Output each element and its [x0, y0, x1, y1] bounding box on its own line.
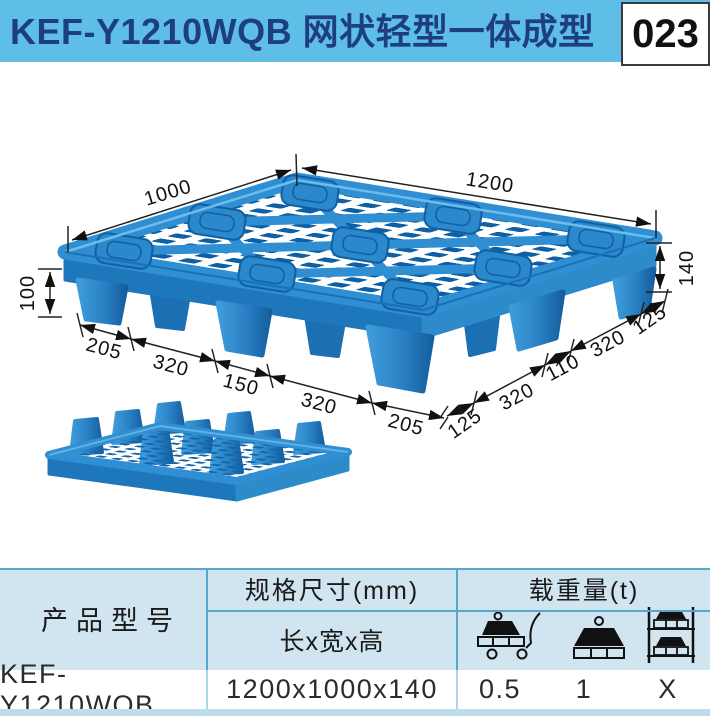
front-chain-label: 205: [84, 334, 125, 365]
header-bar: KEF-Y1210WQB 网状轻型一体成型: [0, 0, 710, 62]
col-size-sub: 长x宽x高: [208, 612, 456, 668]
front-chain-label: 150: [221, 370, 262, 401]
dim-label-length: 1200: [464, 168, 515, 197]
pallet-technical-drawing: 1000 1200 140 100 205 320 150 320 205 12…: [0, 62, 710, 568]
dim-foot-height-100: [38, 269, 62, 317]
spec-table: 产品型号 规格尺寸(mm) 长x宽x高 载重量(t): [0, 568, 710, 716]
spec-table-row: KEF-Y1210WQB 1200x1000x140 0.5 1 X: [0, 670, 710, 709]
front-chain-label: 205: [386, 410, 427, 441]
racking-load-icon: [644, 605, 698, 665]
col-load: 载重量(t): [458, 568, 710, 610]
col-product-model: 产品型号: [0, 568, 214, 668]
value-racking-load: X: [626, 674, 710, 705]
table-divider: [0, 568, 710, 570]
catalog-page: KEF-Y1210WQB 网状轻型一体成型 023: [0, 0, 710, 716]
bottom-strip: [0, 709, 710, 716]
flipped-pallet: [49, 403, 348, 500]
front-chain-label: 320: [151, 351, 192, 382]
table-divider: [208, 610, 710, 612]
side-chain-label: 110: [542, 350, 583, 386]
dim-label-foot-height: 100: [17, 275, 39, 311]
side-chain-label: 125: [444, 405, 486, 444]
table-divider: [206, 670, 208, 709]
value-dynamic-load: 0.5: [458, 674, 542, 705]
side-chain-label: 320: [496, 379, 538, 416]
cell-model: KEF-Y1210WQB: [0, 670, 206, 709]
dim-label-width: 1000: [142, 175, 195, 210]
static-load-icon: [568, 615, 630, 665]
dynamic-load-icon: [468, 611, 554, 665]
cell-load-values: 0.5 1 X: [458, 670, 710, 709]
value-static-load: 1: [542, 674, 626, 705]
table-divider: [456, 670, 458, 709]
side-chain-label: 320: [587, 326, 629, 363]
col-size: 规格尺寸(mm): [208, 568, 456, 610]
page-title: KEF-Y1210WQB 网状轻型一体成型: [10, 0, 595, 62]
dim-label-height: 140: [676, 250, 698, 286]
load-icons-row: [458, 612, 710, 668]
page-number-badge: 023: [621, 2, 710, 66]
cell-size: 1200x1000x140: [208, 670, 456, 709]
